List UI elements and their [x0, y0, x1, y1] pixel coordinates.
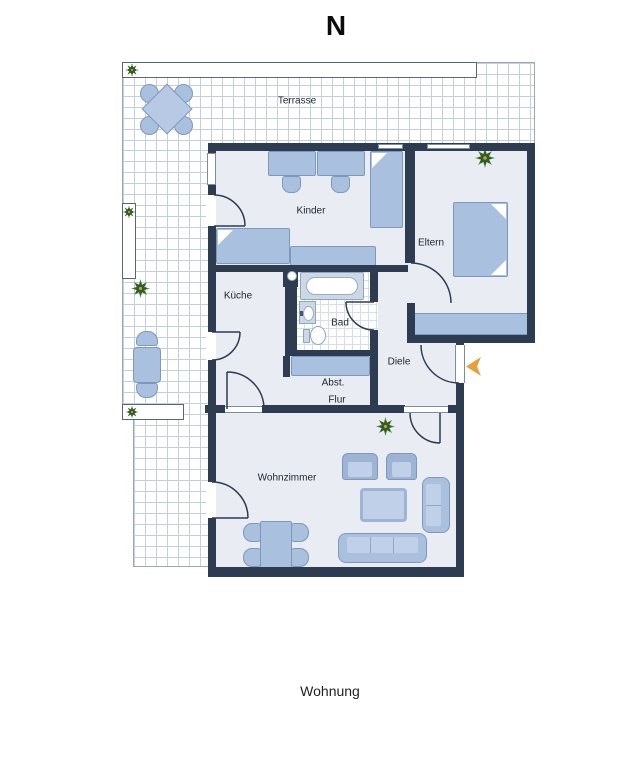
terrace-dining-set	[140, 82, 194, 136]
wall	[208, 226, 216, 268]
toilet-tank	[303, 329, 310, 343]
toilet	[303, 326, 326, 346]
wall	[285, 272, 297, 352]
bathtub	[300, 272, 364, 300]
plant-icon	[131, 279, 150, 298]
wall	[262, 405, 405, 413]
door-frame	[225, 406, 262, 413]
eltern-label: Eltern	[418, 238, 444, 249]
dining-table	[260, 521, 292, 571]
dining-chair	[243, 548, 261, 567]
desk-chair	[282, 176, 301, 193]
abstellraum-label: Abst.	[322, 378, 345, 389]
seat-cushion	[426, 484, 441, 526]
wall	[208, 518, 216, 567]
bed	[370, 151, 403, 228]
desk	[317, 151, 365, 176]
wall	[407, 335, 535, 343]
wall	[285, 350, 378, 356]
wall	[456, 335, 464, 345]
washbasin-bowl	[303, 306, 314, 321]
wall	[208, 185, 216, 195]
window	[427, 144, 470, 149]
planter-box-top	[122, 62, 477, 78]
wall	[456, 383, 464, 567]
window	[378, 144, 403, 149]
wardrobe	[412, 313, 530, 335]
shaft-pipe-icon	[287, 271, 297, 281]
plant-icon	[123, 206, 135, 218]
plant-icon	[126, 406, 138, 418]
door-threshold	[206, 195, 216, 226]
wall	[527, 143, 535, 343]
wall	[405, 143, 415, 263]
toilet-bowl	[310, 326, 326, 345]
seat-cushion	[348, 462, 372, 477]
dining-chair	[291, 548, 309, 567]
dining-chair	[243, 523, 261, 542]
armchair	[342, 453, 378, 480]
door-threshold	[206, 482, 216, 518]
kinder-label: Kinder	[297, 206, 326, 217]
double-bed	[453, 202, 508, 277]
diele-label: Diele	[388, 357, 411, 368]
flur-label: Flur	[328, 395, 345, 406]
bad-label: Bad	[331, 318, 349, 329]
armchair	[386, 453, 417, 480]
wall	[208, 567, 464, 577]
terrace-chair	[136, 331, 158, 346]
north-indicator: N	[326, 10, 346, 42]
wall	[208, 268, 216, 332]
terrasse-label: Terrasse	[278, 96, 316, 107]
entrance-arrow-icon	[466, 357, 481, 376]
entrance-door-frame	[455, 345, 465, 383]
sofa	[338, 533, 427, 563]
storage-shelf	[291, 356, 370, 376]
pillow-fold	[491, 260, 506, 275]
desk	[268, 151, 316, 176]
plan-title: Wohnung	[300, 683, 360, 699]
pillow-fold	[372, 153, 387, 168]
wall	[208, 360, 216, 405]
wall	[205, 405, 225, 413]
sofa	[422, 477, 450, 533]
planter-box-left	[122, 203, 136, 279]
plant-icon	[475, 148, 495, 168]
plant-icon	[126, 64, 138, 76]
wall	[370, 272, 378, 302]
coffee-table	[360, 488, 407, 522]
pillow-fold	[218, 230, 233, 245]
wohnzimmer-label: Wohnzimmer	[258, 473, 317, 484]
window	[207, 153, 216, 185]
washbasin	[299, 301, 316, 324]
door-threshold	[206, 332, 216, 360]
dresser	[290, 246, 376, 266]
planter-box-bottom	[122, 404, 184, 420]
desk-chair	[331, 176, 350, 193]
wall	[407, 303, 415, 335]
wall	[208, 265, 408, 272]
terrace-area-lower-left	[133, 420, 210, 567]
bathtub-basin	[306, 277, 358, 295]
wall	[208, 143, 535, 151]
floor-plan-canvas: N	[0, 0, 630, 757]
terrace-small-table	[133, 347, 161, 383]
wall	[283, 356, 290, 377]
bed	[216, 228, 290, 264]
pillow-fold	[491, 204, 506, 219]
seat-cushion	[347, 537, 418, 553]
dining-chair	[291, 523, 309, 542]
kueche-label: Küche	[224, 291, 252, 302]
wall	[208, 143, 216, 153]
plant-icon	[376, 417, 395, 436]
door-frame	[404, 406, 448, 413]
seat-cushion	[392, 462, 411, 477]
wall	[208, 413, 216, 482]
